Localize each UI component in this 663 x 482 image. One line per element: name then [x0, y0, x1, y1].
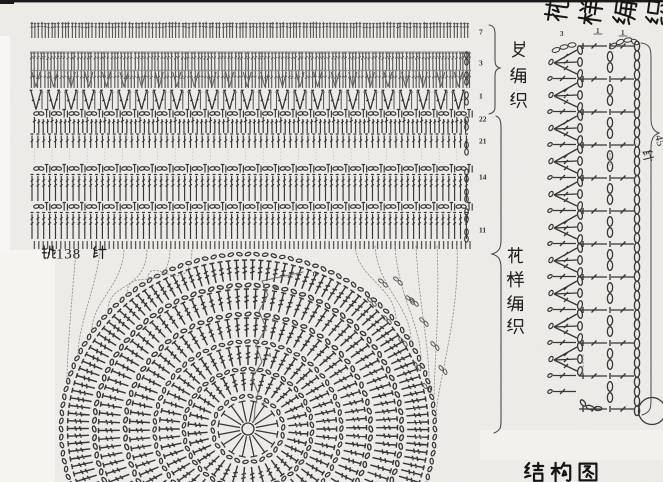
svg-text:11: 11	[479, 226, 486, 235]
svg-text:10: 10	[312, 272, 318, 278]
svg-text:2: 2	[262, 400, 265, 406]
svg-text:3: 3	[479, 59, 483, 68]
svg-text:7: 7	[479, 28, 483, 37]
svg-text:14: 14	[479, 173, 487, 182]
svg-text:21: 21	[479, 137, 487, 146]
svg-text:8: 8	[274, 286, 277, 292]
svg-text:6: 6	[272, 318, 275, 324]
svg-text:1: 1	[479, 92, 483, 101]
svg-text:138: 138	[56, 247, 81, 263]
svg-text:22: 22	[479, 115, 487, 124]
svg-text:4: 4	[268, 353, 271, 359]
svg-text:3: 3	[560, 30, 564, 38]
